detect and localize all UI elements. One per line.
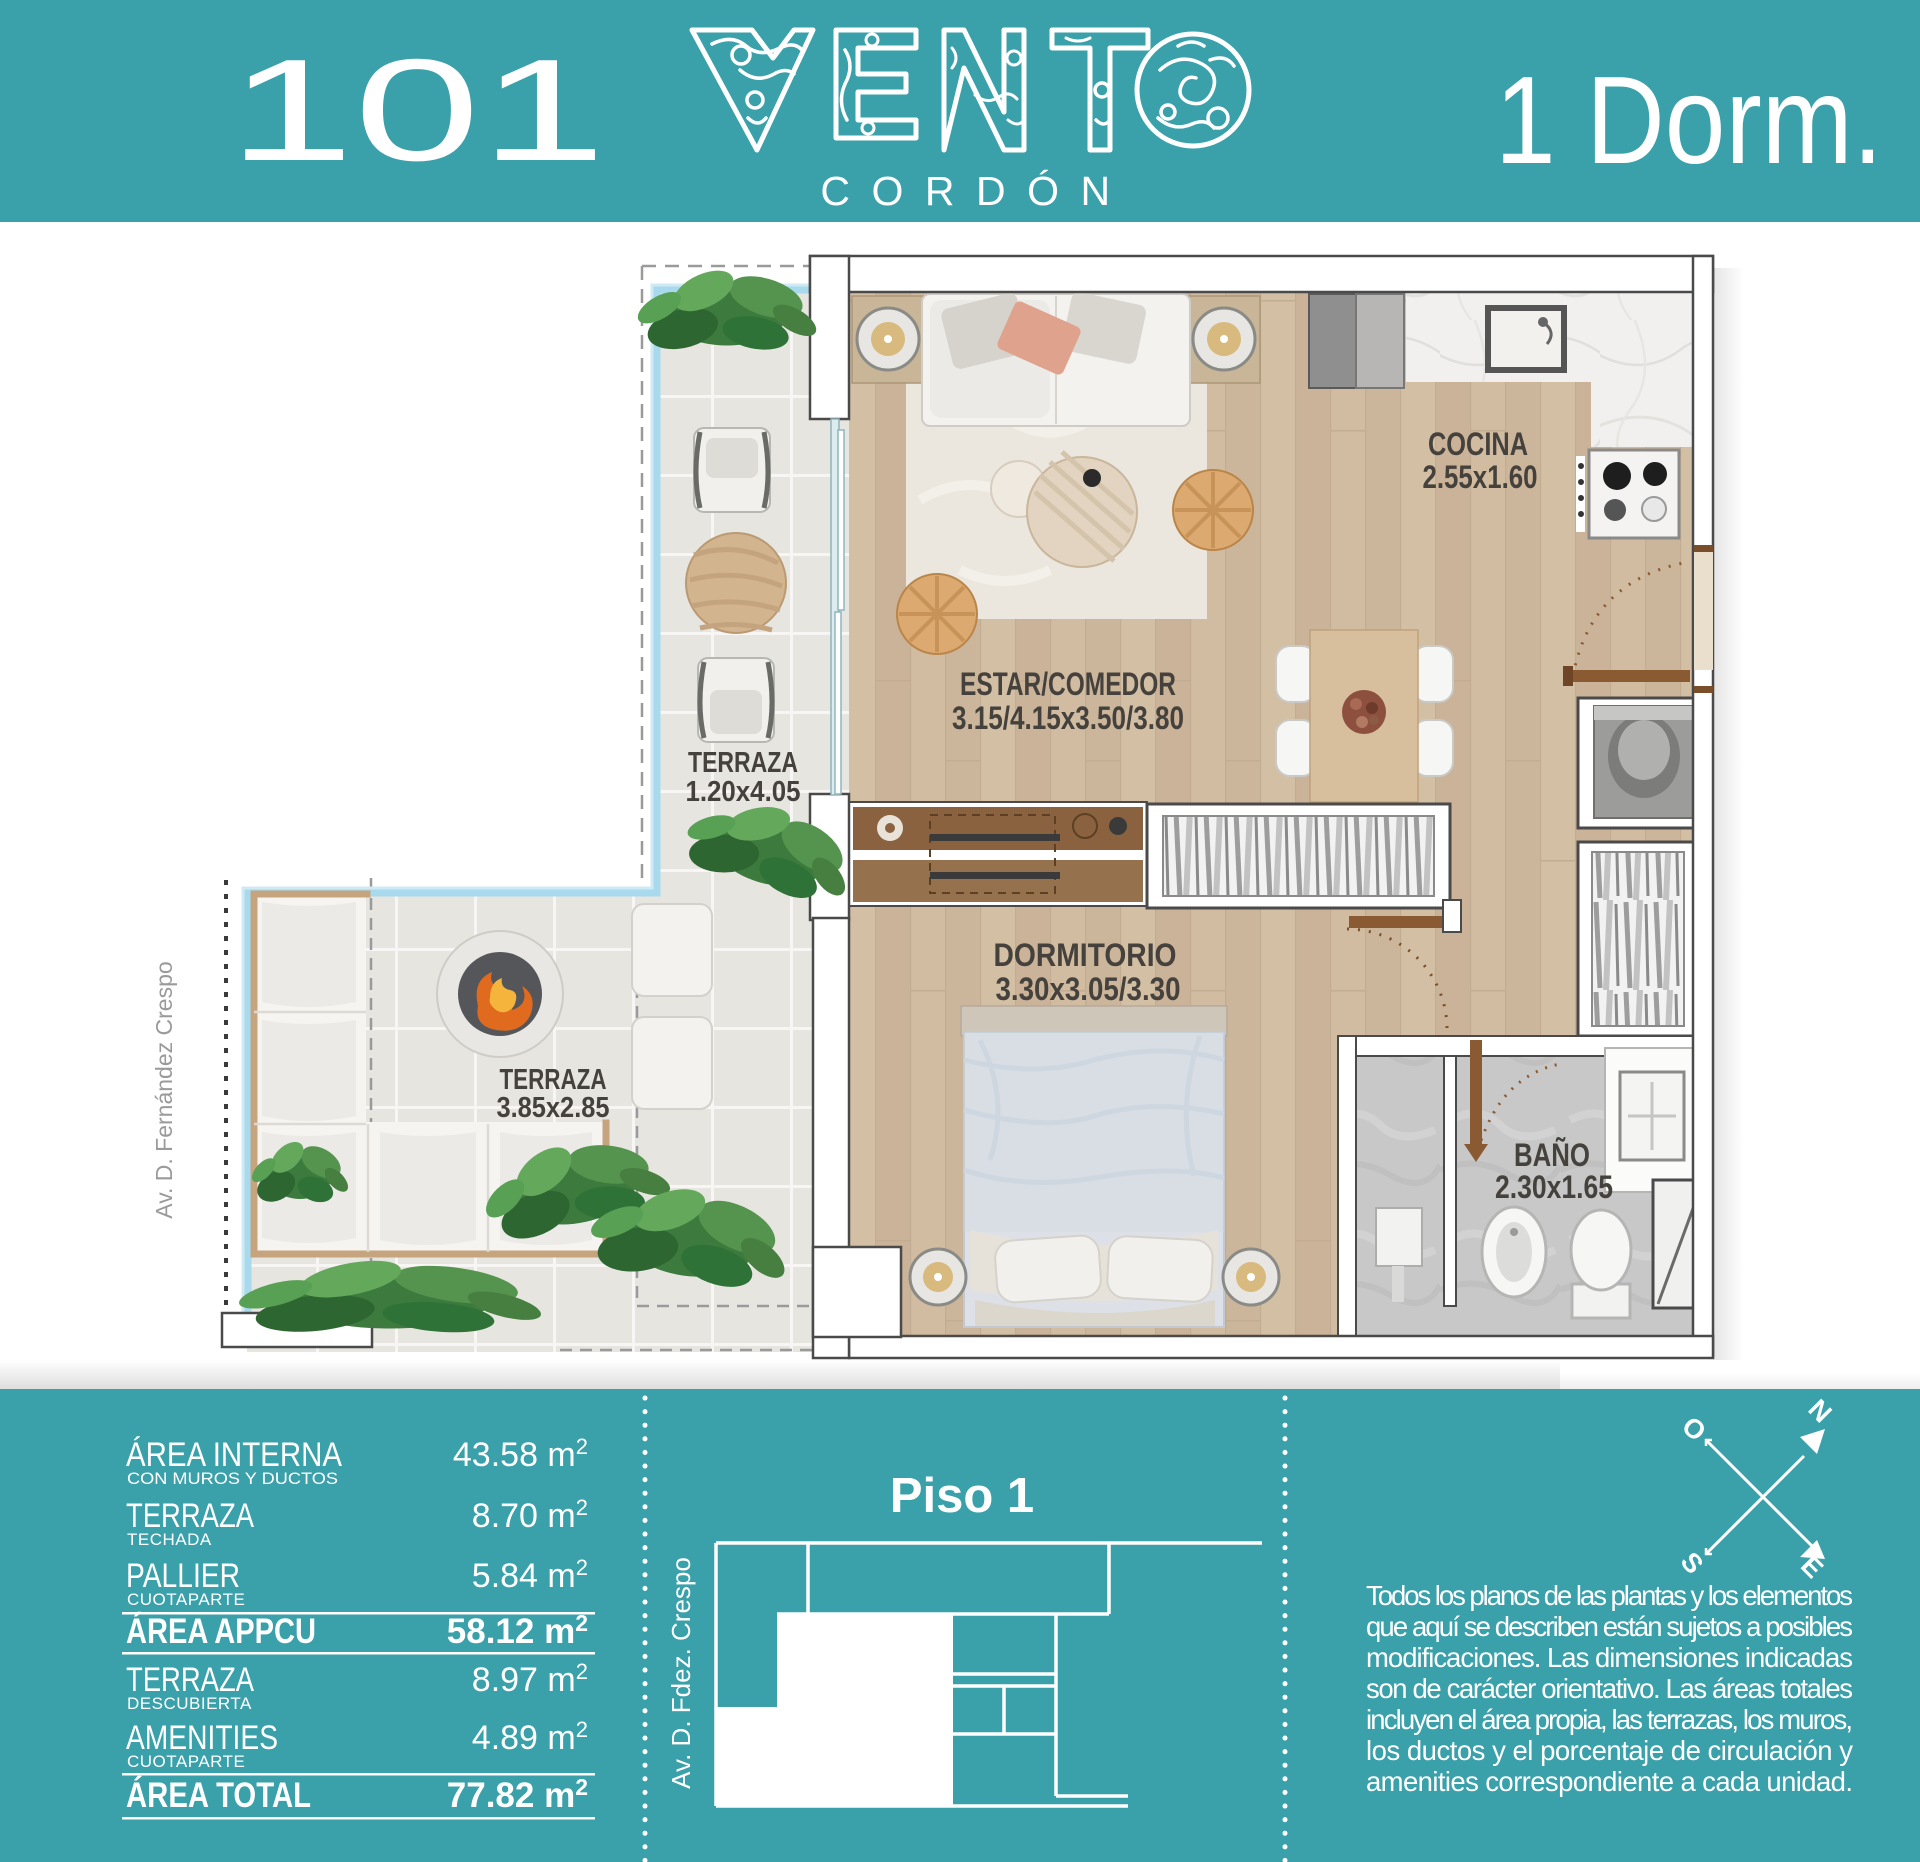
svg-text:5.84 m2: 5.84 m2 bbox=[472, 1555, 588, 1595]
svg-text:ESTAR/COMEDOR: ESTAR/COMEDOR bbox=[960, 666, 1176, 702]
svg-text:3.30x3.05/3.30: 3.30x3.05/3.30 bbox=[996, 971, 1181, 1007]
svg-text:modificaciones. Las dimensio: modificaciones. Las dimensiones indicada… bbox=[1366, 1642, 1853, 1673]
svg-text:son de carácter orientativo. L: son de carácter orientativo. Las áreas t… bbox=[1366, 1673, 1853, 1704]
svg-text:1.20x4.05: 1.20x4.05 bbox=[686, 776, 801, 808]
svg-text:CUOTAPARTE: CUOTAPARTE bbox=[127, 1752, 245, 1771]
svg-text:que aquí se describen están su: que aquí se describen están sujetos a po… bbox=[1366, 1611, 1853, 1642]
svg-text:Piso 1: Piso 1 bbox=[890, 1469, 1034, 1523]
svg-text:TERRAZA: TERRAZA bbox=[688, 747, 798, 779]
svg-text:Av. D. Fdez. Crespo: Av. D. Fdez. Crespo bbox=[666, 1557, 696, 1789]
svg-text:TECHADA: TECHADA bbox=[127, 1530, 212, 1549]
svg-text:3.85x2.85: 3.85x2.85 bbox=[497, 1092, 610, 1124]
svg-text:8.70 m2: 8.70 m2 bbox=[472, 1495, 588, 1535]
svg-text:43.58 m2: 43.58 m2 bbox=[453, 1434, 588, 1474]
svg-text:COCINA: COCINA bbox=[1428, 426, 1528, 462]
svg-text:77.82 m2: 77.82 m2 bbox=[447, 1774, 588, 1815]
svg-text:101: 101 bbox=[228, 29, 606, 191]
svg-text:Todos los planos de las planta: Todos los planos de las plantas y los el… bbox=[1366, 1580, 1853, 1611]
svg-text:amenities correspondiente a ca: amenities correspondiente a cada unidad. bbox=[1366, 1766, 1853, 1797]
svg-text:58.12 m2: 58.12 m2 bbox=[447, 1610, 588, 1651]
svg-text:DORMITORIO: DORMITORIO bbox=[994, 937, 1177, 973]
svg-text:2.30x1.65: 2.30x1.65 bbox=[1495, 1169, 1613, 1205]
svg-text:ÁREA APPCU: ÁREA APPCU bbox=[126, 1611, 316, 1651]
svg-text:BAÑO: BAÑO bbox=[1514, 1137, 1590, 1173]
svg-text:3.15/4.15x3.50/3.80: 3.15/4.15x3.50/3.80 bbox=[952, 700, 1184, 736]
svg-text:4.89 m2: 4.89 m2 bbox=[472, 1717, 588, 1757]
svg-text:CUOTAPARTE: CUOTAPARTE bbox=[127, 1590, 245, 1609]
svg-text:los ductos y el porcentaje de: los ductos y el porcentaje de circulació… bbox=[1366, 1735, 1853, 1766]
svg-text:incluyen el área propia, las t: incluyen el área propia, las terrazas, l… bbox=[1366, 1704, 1853, 1735]
svg-text:2.55x1.60: 2.55x1.60 bbox=[1423, 459, 1538, 495]
svg-text:1 Dorm.: 1 Dorm. bbox=[1495, 52, 1883, 190]
svg-text:ÁREA TOTAL: ÁREA TOTAL bbox=[126, 1775, 311, 1815]
svg-text:DESCUBIERTA: DESCUBIERTA bbox=[127, 1694, 252, 1713]
svg-text:Av. D. Fernández Crespo: Av. D. Fernández Crespo bbox=[151, 961, 177, 1218]
svg-text:8.97 m2: 8.97 m2 bbox=[472, 1659, 588, 1699]
svg-text:CORDÓN: CORDÓN bbox=[820, 168, 1131, 214]
svg-text:CON MUROS Y DUCTOS: CON MUROS Y DUCTOS bbox=[127, 1469, 338, 1488]
